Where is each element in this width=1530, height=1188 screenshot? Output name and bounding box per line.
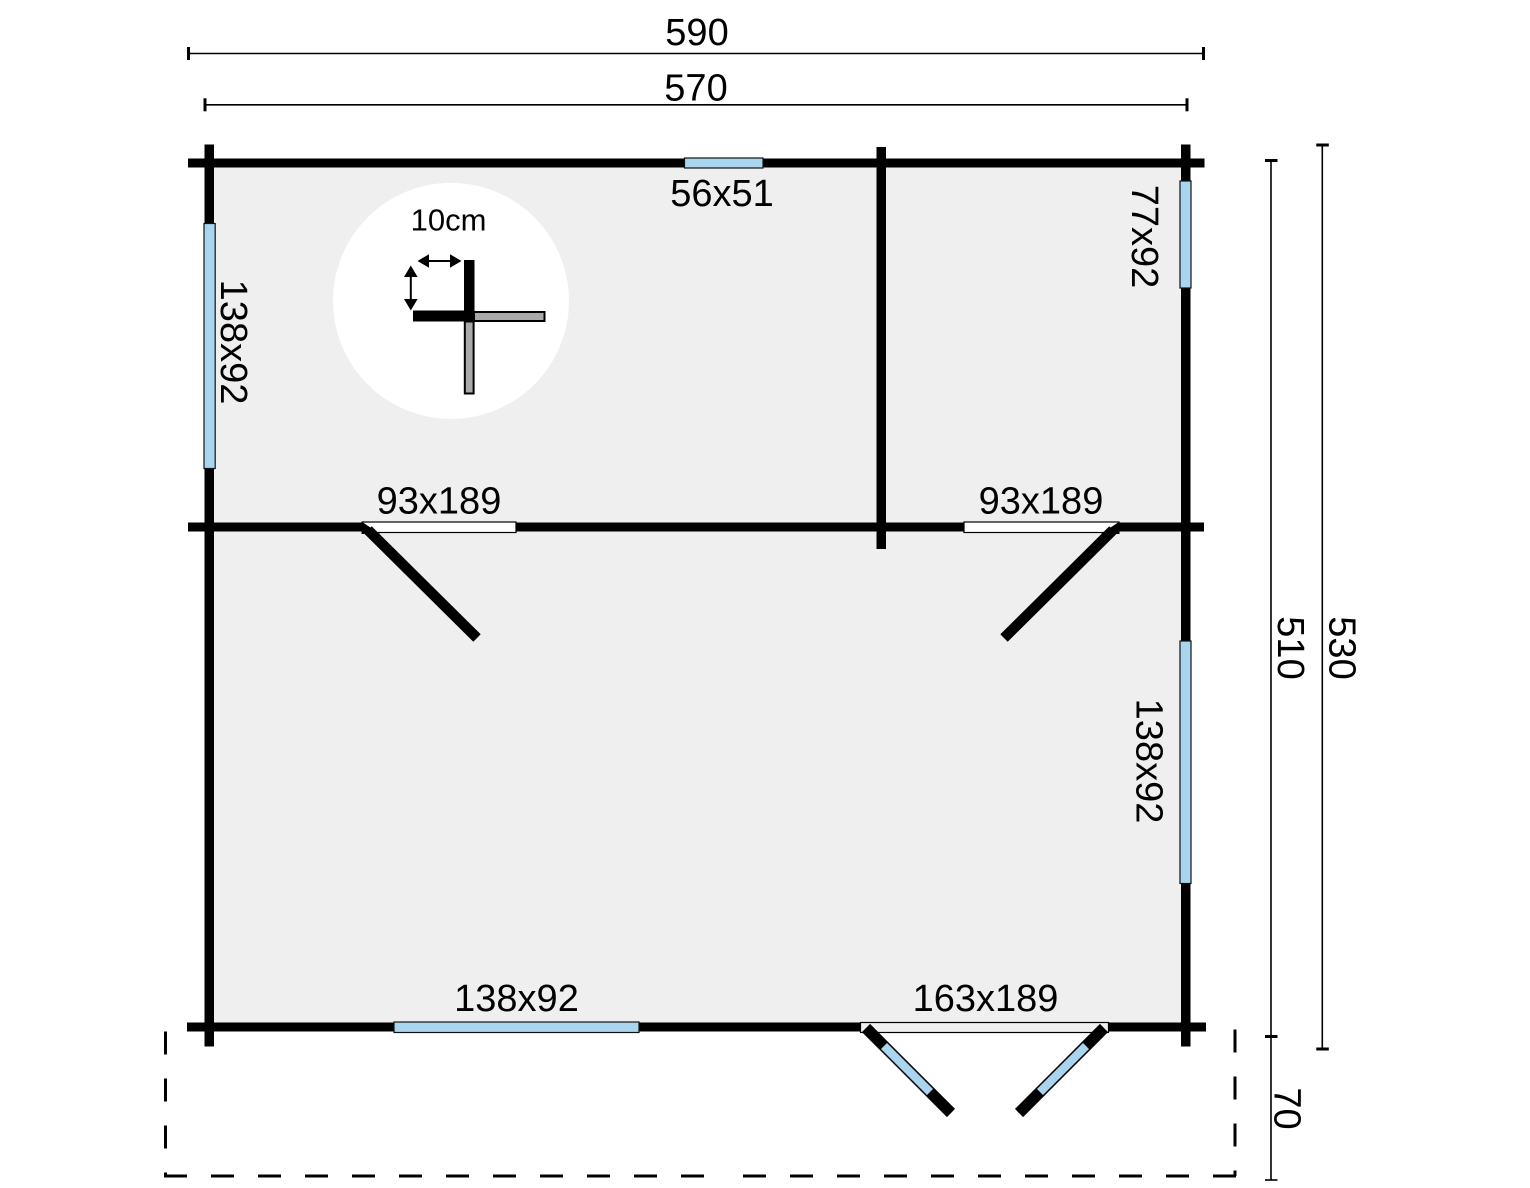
svg-text:163x189: 163x189 xyxy=(913,978,1059,1020)
svg-text:590: 590 xyxy=(665,12,728,54)
svg-text:530: 530 xyxy=(1321,616,1363,679)
svg-text:138x92: 138x92 xyxy=(212,280,254,405)
svg-text:93x189: 93x189 xyxy=(979,481,1104,523)
svg-text:138x92: 138x92 xyxy=(1128,699,1170,824)
svg-text:138x92: 138x92 xyxy=(454,978,579,1020)
svg-text:570: 570 xyxy=(664,68,727,110)
svg-text:70: 70 xyxy=(1266,1087,1308,1129)
svg-text:10cm: 10cm xyxy=(411,202,487,237)
svg-text:77x92: 77x92 xyxy=(1123,185,1165,289)
svg-text:510: 510 xyxy=(1269,616,1311,679)
svg-text:56x51: 56x51 xyxy=(670,173,774,215)
svg-text:93x189: 93x189 xyxy=(377,481,502,523)
